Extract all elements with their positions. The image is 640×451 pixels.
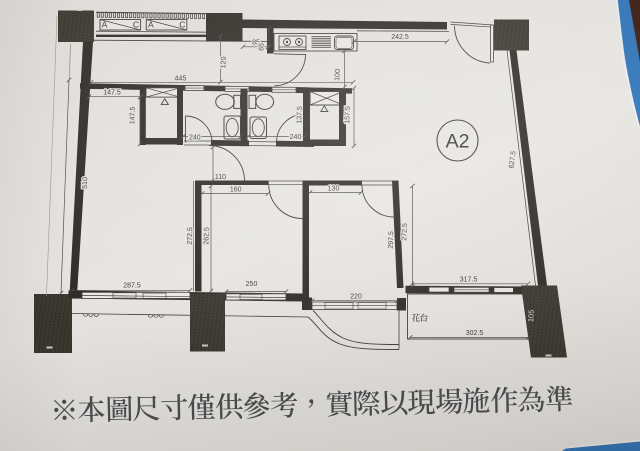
svg-text:A: A xyxy=(102,19,108,29)
svg-text:287.5: 287.5 xyxy=(123,283,141,290)
svg-text:240: 240 xyxy=(189,134,201,141)
svg-text:137.5: 137.5 xyxy=(296,106,304,124)
svg-text:250: 250 xyxy=(246,281,258,288)
svg-text:C: C xyxy=(179,19,185,29)
svg-text:272.5: 272.5 xyxy=(187,227,195,245)
svg-text:157.5: 157.5 xyxy=(344,106,352,124)
svg-text:262.5: 262.5 xyxy=(203,227,211,245)
svg-text:220: 220 xyxy=(350,294,362,301)
svg-text:240: 240 xyxy=(290,134,302,141)
svg-text:302.5: 302.5 xyxy=(466,330,484,337)
svg-text:317.5: 317.5 xyxy=(460,276,478,283)
svg-text:110: 110 xyxy=(215,174,226,181)
svg-text:100: 100 xyxy=(334,69,341,81)
svg-text:272.5: 272.5 xyxy=(401,223,409,241)
svg-text:105: 105 xyxy=(526,309,536,322)
svg-text:445: 445 xyxy=(175,75,187,82)
svg-text:160: 160 xyxy=(230,186,242,193)
svg-text:C: C xyxy=(133,19,139,29)
svg-text:510: 510 xyxy=(82,177,89,189)
svg-text:147.5: 147.5 xyxy=(103,89,121,96)
svg-text:A: A xyxy=(148,19,154,29)
svg-text:627.5: 627.5 xyxy=(508,151,517,169)
svg-text:65: 65 xyxy=(258,43,265,51)
svg-text:297.5: 297.5 xyxy=(388,231,396,249)
svg-text:A2: A2 xyxy=(446,131,470,153)
svg-text:130: 130 xyxy=(328,185,340,192)
svg-text:147.5: 147.5 xyxy=(129,106,137,124)
svg-text:120: 120 xyxy=(220,56,227,68)
svg-text:242.5: 242.5 xyxy=(391,34,409,41)
